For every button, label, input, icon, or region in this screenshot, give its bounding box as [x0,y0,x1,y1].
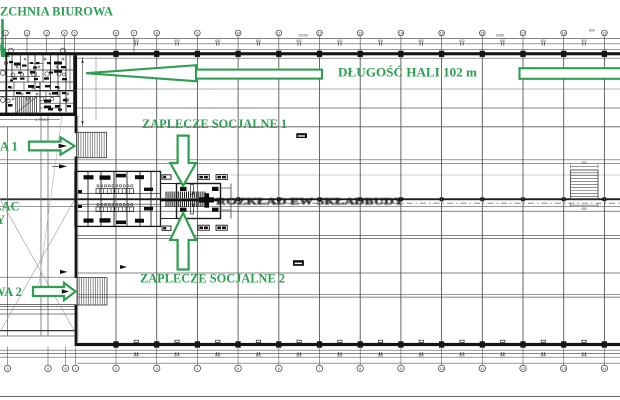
svg-text:600: 600 [500,354,506,358]
svg-text:8: 8 [156,32,158,36]
svg-text:ZAPLECZE SOCJALNE 2: ZAPLECZE SOCJALNE 2 [140,270,285,285]
svg-text:600: 600 [215,354,221,358]
svg-text:450: 450 [581,207,587,211]
svg-text:4-7503-0: 4-7503-0 [35,118,49,122]
svg-text:0: 0 [47,367,49,371]
svg-text:9: 9 [196,32,198,36]
svg-text:600: 600 [459,39,465,43]
svg-text:4: 4 [63,32,65,36]
svg-text:600: 600 [215,39,221,43]
svg-text:1: 1 [5,32,7,36]
svg-text:600: 600 [256,39,262,43]
svg-text:8: 8 [359,367,361,371]
svg-text:600: 600 [541,354,547,358]
svg-text:16: 16 [480,32,484,36]
svg-text:600: 600 [581,39,587,43]
svg-text:A 1: A 1 [0,140,18,154]
svg-text:2400: 2400 [496,34,504,38]
svg-text:ROZKŁAD EW SKŁADBUDY: ROZKŁAD EW SKŁADBUDY [216,196,405,206]
svg-text:18: 18 [562,32,566,36]
svg-text:ZAPLECZE SOCJALNE 1: ZAPLECZE SOCJALNE 1 [142,116,287,131]
svg-text:Y: Y [0,213,5,227]
svg-text:9: 9 [6,367,8,371]
svg-text:14: 14 [602,367,606,371]
svg-text:600: 600 [134,354,140,358]
svg-text:ZCHNIA BIUROWA: ZCHNIA BIUROWA [0,5,114,19]
svg-text:10200: 10200 [298,34,308,38]
svg-text:600: 600 [419,354,425,358]
svg-text:15: 15 [440,32,444,36]
svg-text:600: 600 [500,39,506,43]
svg-text:19: 19 [602,32,606,36]
svg-text:600: 600 [419,39,425,43]
svg-text:600: 600 [337,354,343,358]
svg-text:DŁUGOŚĆ HALI 102 m: DŁUGOŚĆ HALI 102 m [338,66,478,80]
svg-text:17: 17 [521,32,525,36]
svg-text:600: 600 [174,354,180,358]
svg-text:10: 10 [236,32,240,36]
svg-text:1: 1 [74,367,76,371]
svg-text:4: 4 [196,367,198,371]
svg-text:600: 600 [378,39,384,43]
svg-text:600: 600 [256,354,262,358]
svg-text:14: 14 [399,32,403,36]
svg-text:7: 7 [318,367,320,371]
svg-text:600: 600 [337,39,343,43]
svg-text:5: 5 [74,32,76,36]
svg-text:600: 600 [134,39,140,43]
svg-text:600: 600 [296,354,302,358]
svg-text:600: 600 [541,39,547,43]
svg-text:PLAC: PLAC [0,199,20,213]
svg-text:8: 8 [64,367,66,371]
svg-text:11: 11 [277,32,281,36]
svg-text:13: 13 [562,367,566,371]
svg-text:5: 5 [237,367,239,371]
svg-text:450: 450 [581,161,587,165]
svg-text:600: 600 [174,39,180,43]
svg-text:9: 9 [400,367,402,371]
svg-text:600: 600 [296,39,302,43]
svg-text:600: 600 [459,354,465,358]
svg-text:600: 600 [378,354,384,358]
svg-text:7: 7 [133,32,135,36]
svg-text:3: 3 [156,367,158,371]
svg-text:10: 10 [439,367,443,371]
svg-text:11: 11 [480,367,484,371]
svg-text:600: 600 [581,354,587,358]
svg-text:12: 12 [318,32,322,36]
svg-text:3: 3 [46,32,48,36]
svg-text:12: 12 [521,367,525,371]
svg-text:6: 6 [278,367,280,371]
svg-text:WA 2: WA 2 [0,285,22,299]
svg-text:6: 6 [115,32,117,36]
svg-text:2: 2 [115,367,117,371]
svg-text:600: 600 [589,29,595,33]
svg-text:13: 13 [358,32,362,36]
svg-text:2: 2 [26,32,28,36]
